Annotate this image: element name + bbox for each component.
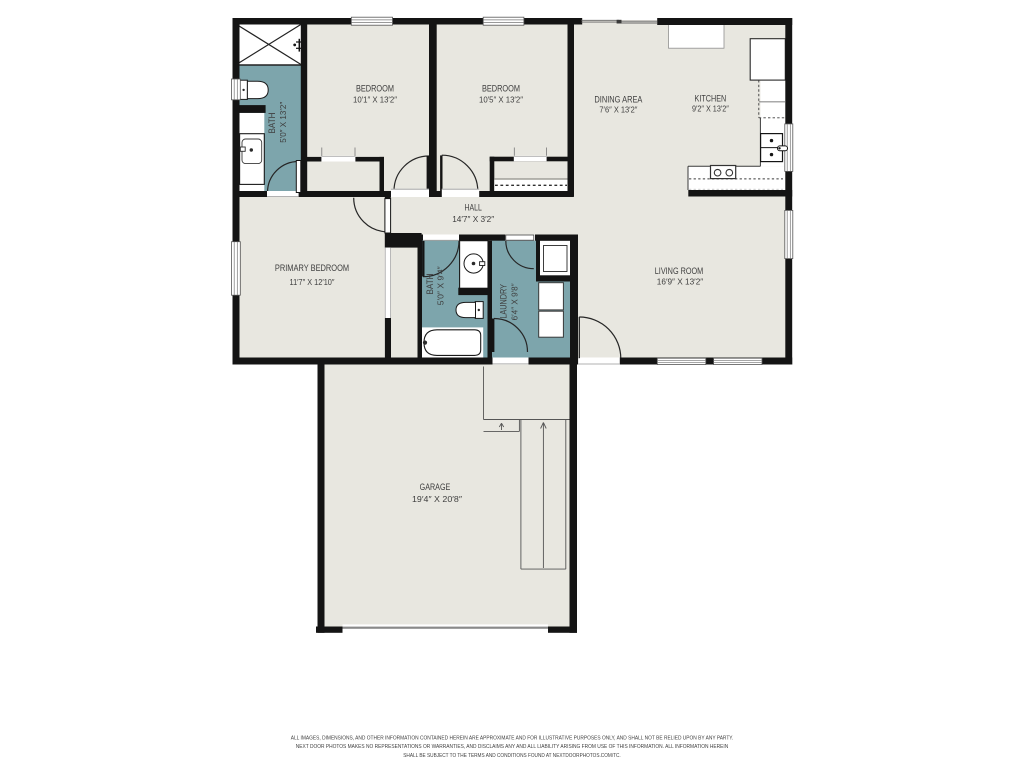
svg-text:BATH: BATH <box>425 274 435 295</box>
svg-text:14′7″ X 3′2″: 14′7″ X 3′2″ <box>452 214 494 224</box>
svg-text:7′6″ X 13′2″: 7′6″ X 13′2″ <box>599 105 637 115</box>
svg-text:10′1″ X 13′2″: 10′1″ X 13′2″ <box>353 95 397 105</box>
svg-text:HALL: HALL <box>465 203 482 213</box>
svg-text:LAUNDRY: LAUNDRY <box>499 284 509 319</box>
svg-text:PRIMARY BEDROOM: PRIMARY BEDROOM <box>275 263 349 273</box>
svg-text:DINING AREA: DINING AREA <box>594 95 642 105</box>
svg-text:16′9″ X 13′2″: 16′9″ X 13′2″ <box>657 276 703 286</box>
svg-text:BATH: BATH <box>267 113 277 134</box>
svg-text:SHALL BE SUBJECT TO THE TERMS: SHALL BE SUBJECT TO THE TERMS AND CONDIT… <box>403 753 621 759</box>
svg-text:ALL IMAGES, DIMENSIONS, AND OT: ALL IMAGES, DIMENSIONS, AND OTHER INFORM… <box>291 735 734 741</box>
svg-text:BEDROOM: BEDROOM <box>356 84 394 94</box>
svg-text:5′0″ X 13′2″: 5′0″ X 13′2″ <box>278 102 288 143</box>
svg-text:GARAGE: GARAGE <box>420 482 451 492</box>
svg-text:KITCHEN: KITCHEN <box>695 93 727 103</box>
svg-text:19′4″ X 20′8″: 19′4″ X 20′8″ <box>412 494 462 504</box>
svg-text:10′5″ X 13′2″: 10′5″ X 13′2″ <box>479 95 523 105</box>
svg-text:NEXT DOOR PHOTOS MAKES NO REPR: NEXT DOOR PHOTOS MAKES NO REPRESENTATION… <box>296 744 729 750</box>
svg-text:BEDROOM: BEDROOM <box>482 84 520 94</box>
svg-text:6′4″ X 9′8″: 6′4″ X 9′8″ <box>509 283 519 320</box>
svg-text:11′7″ X 12′10″: 11′7″ X 12′10″ <box>290 277 335 287</box>
svg-text:9′2″ X 13′2″: 9′2″ X 13′2″ <box>692 103 729 113</box>
svg-text:LIVING ROOM: LIVING ROOM <box>655 266 704 276</box>
svg-text:5′0″ X 9′4″: 5′0″ X 9′4″ <box>436 266 446 305</box>
